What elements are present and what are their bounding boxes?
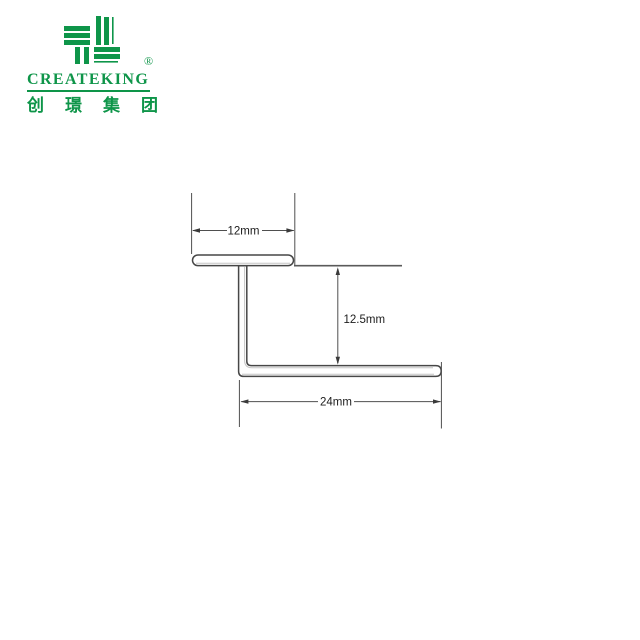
arrowhead-right <box>433 399 441 403</box>
arrowhead-up <box>336 267 340 275</box>
profile-dimension-diagram: 12mm 12.5mm 24mm <box>0 0 640 640</box>
dimension-label-bottom-width: 24mm <box>320 397 352 409</box>
dimension-label-top-width: 12mm <box>228 226 260 238</box>
dimension-label-height: 12.5mm <box>344 314 386 326</box>
product-dimension-image: ® CREATEKING 创 璟 集 团 12mm <box>0 0 640 640</box>
arrowhead-left <box>192 228 200 232</box>
profile-web-and-bottom-flange <box>239 266 442 377</box>
profile-top-flange <box>193 255 294 266</box>
arrowhead-left <box>240 399 248 403</box>
dimension-height: 12.5mm <box>294 266 402 365</box>
arrowhead-right <box>286 228 294 232</box>
arrowhead-down <box>336 357 340 365</box>
